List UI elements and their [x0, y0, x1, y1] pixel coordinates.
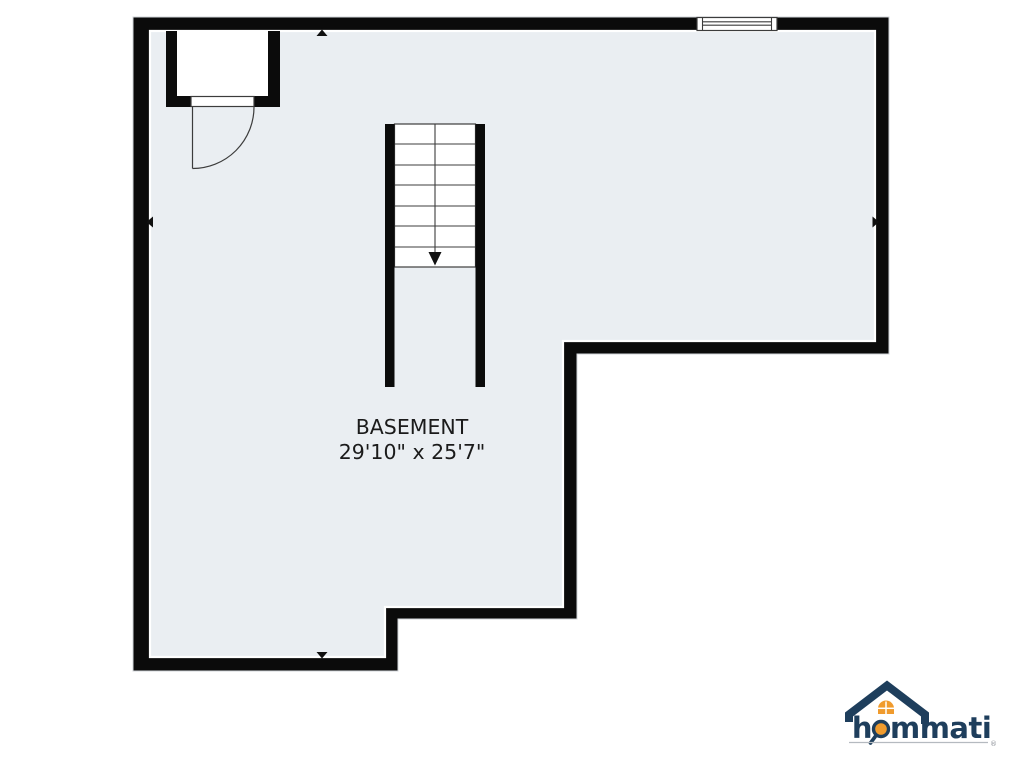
closet-wall-bottom-right-stub: [254, 96, 280, 107]
closet-wall-bottom-left-stub: [166, 96, 191, 107]
closet-wall-right: [268, 31, 280, 107]
hommati-logo: h mmati ®: [849, 686, 997, 749]
logo-registered-mark: ®: [990, 740, 997, 748]
window-frame: [697, 18, 777, 31]
stair-wall-left: [385, 124, 395, 387]
room-dimensions: 29'10" x 25'7": [339, 440, 486, 464]
logo-brand-text-post: mmati: [890, 711, 991, 745]
stair-wall-right: [476, 124, 486, 387]
logo-brand-text-pre: h: [852, 711, 872, 745]
floorplan-canvas: BASEMENT 29'10" x 25'7" h mmati ®: [0, 0, 1024, 768]
floorplan: BASEMENT 29'10" x 25'7": [133, 17, 889, 671]
window: [697, 18, 777, 31]
closet-wall-left: [166, 31, 177, 107]
closet-interior: [177, 31, 268, 96]
room-label: BASEMENT: [356, 415, 469, 439]
door-threshold: [191, 97, 254, 107]
